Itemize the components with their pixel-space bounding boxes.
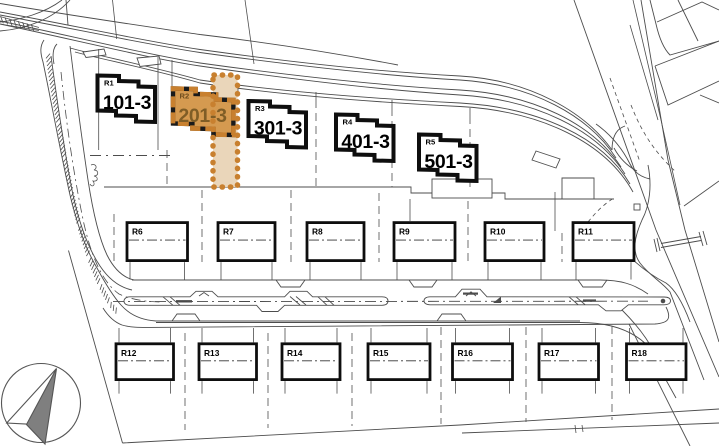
svg-text:R4: R4 xyxy=(343,118,353,127)
svg-text:R6: R6 xyxy=(132,227,143,237)
svg-text:R7: R7 xyxy=(223,227,234,237)
svg-text:R3: R3 xyxy=(255,104,265,113)
svg-text:R12: R12 xyxy=(121,348,137,358)
svg-text:R14: R14 xyxy=(287,348,303,358)
svg-text:R17: R17 xyxy=(544,348,560,358)
svg-text:R1: R1 xyxy=(104,79,114,88)
svg-text:R16: R16 xyxy=(458,348,474,358)
svg-text:R5: R5 xyxy=(426,138,436,147)
svg-text:R9: R9 xyxy=(399,227,410,237)
svg-text:R8: R8 xyxy=(312,227,323,237)
svg-text:301-3: 301-3 xyxy=(254,118,303,140)
svg-text:R13: R13 xyxy=(204,348,220,358)
svg-text:501-3: 501-3 xyxy=(424,151,473,173)
svg-text:101-3: 101-3 xyxy=(103,92,152,114)
svg-text:401-3: 401-3 xyxy=(341,131,390,153)
svg-text:R18: R18 xyxy=(632,348,648,358)
svg-text:201-3: 201-3 xyxy=(178,105,227,127)
svg-text:R15: R15 xyxy=(373,348,389,358)
svg-text:R10: R10 xyxy=(490,227,506,237)
svg-text:R11: R11 xyxy=(578,227,593,237)
svg-text:R2: R2 xyxy=(180,92,190,101)
